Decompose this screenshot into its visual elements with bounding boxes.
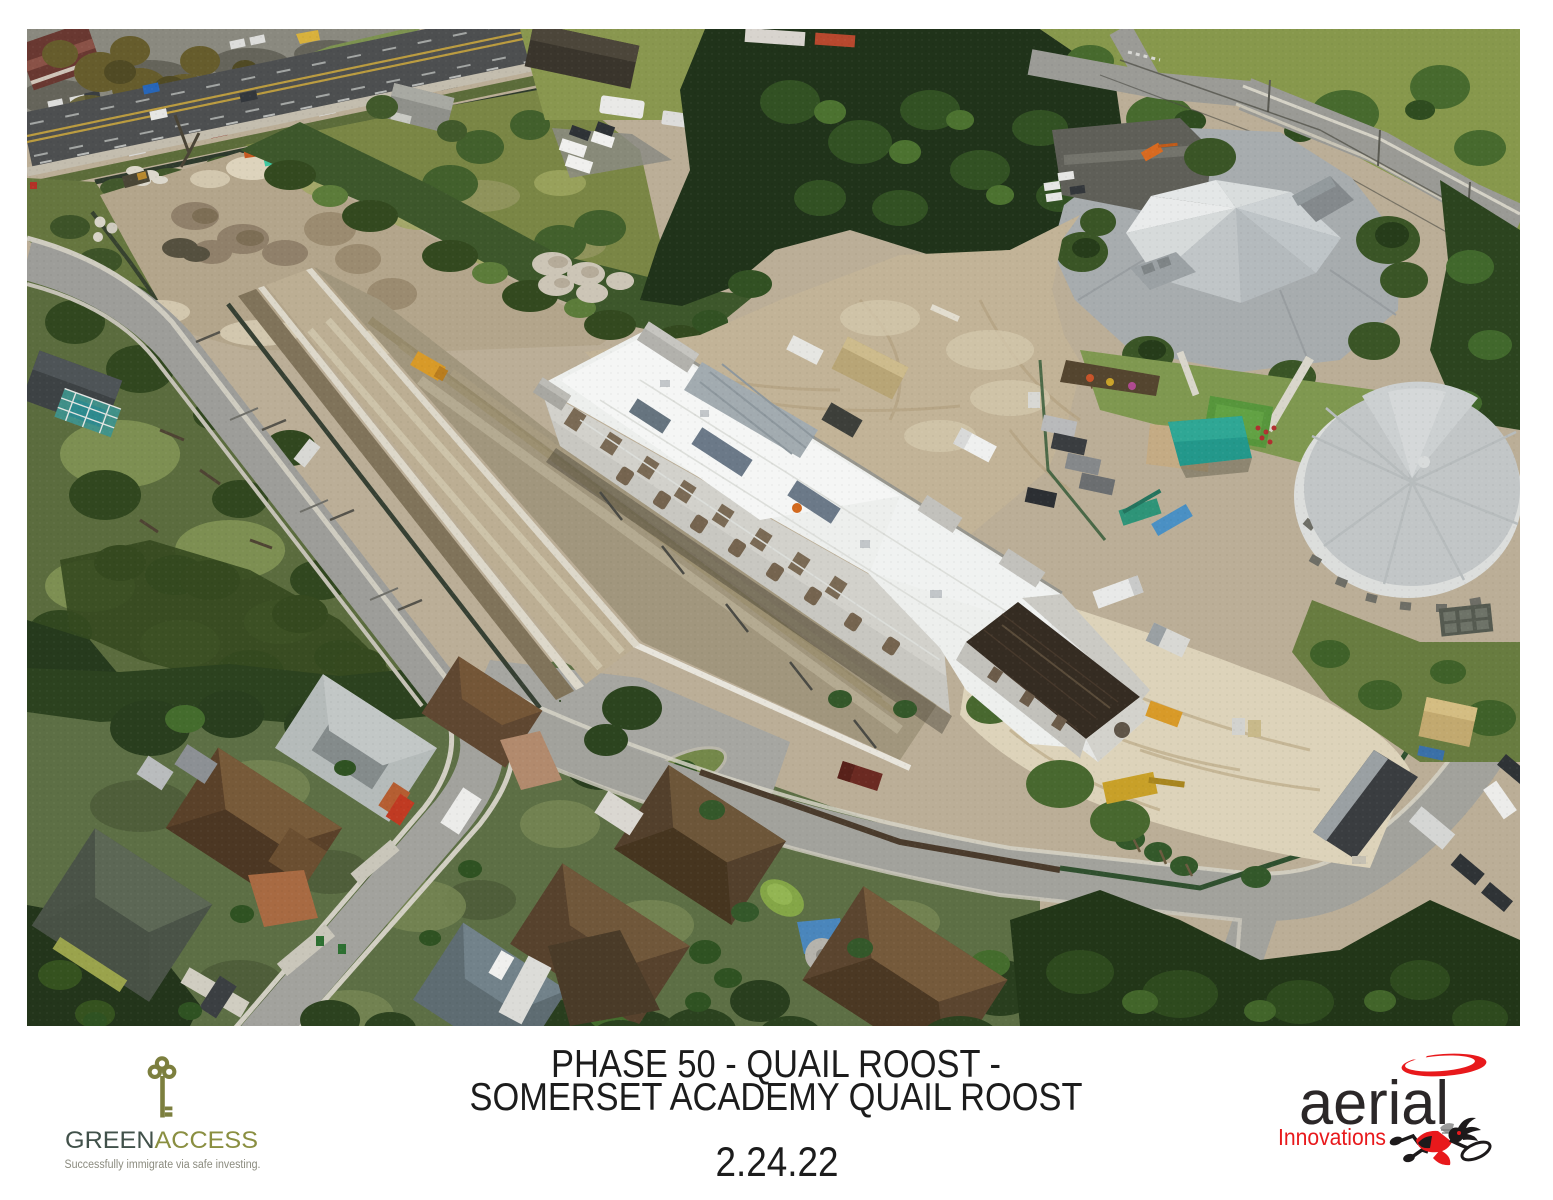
svg-text:Innovations: Innovations [1278,1124,1386,1150]
svg-text:GREENACCESS: GREENACCESS [65,1127,258,1154]
svg-text:2.24.22: 2.24.22 [716,1138,839,1185]
svg-text:Successfully immigrate via saf: Successfully immigrate via safe investin… [65,1159,261,1171]
svg-text:SOMERSET ACADEMY QUAIL ROOST: SOMERSET ACADEMY QUAIL ROOST [470,1076,1083,1119]
